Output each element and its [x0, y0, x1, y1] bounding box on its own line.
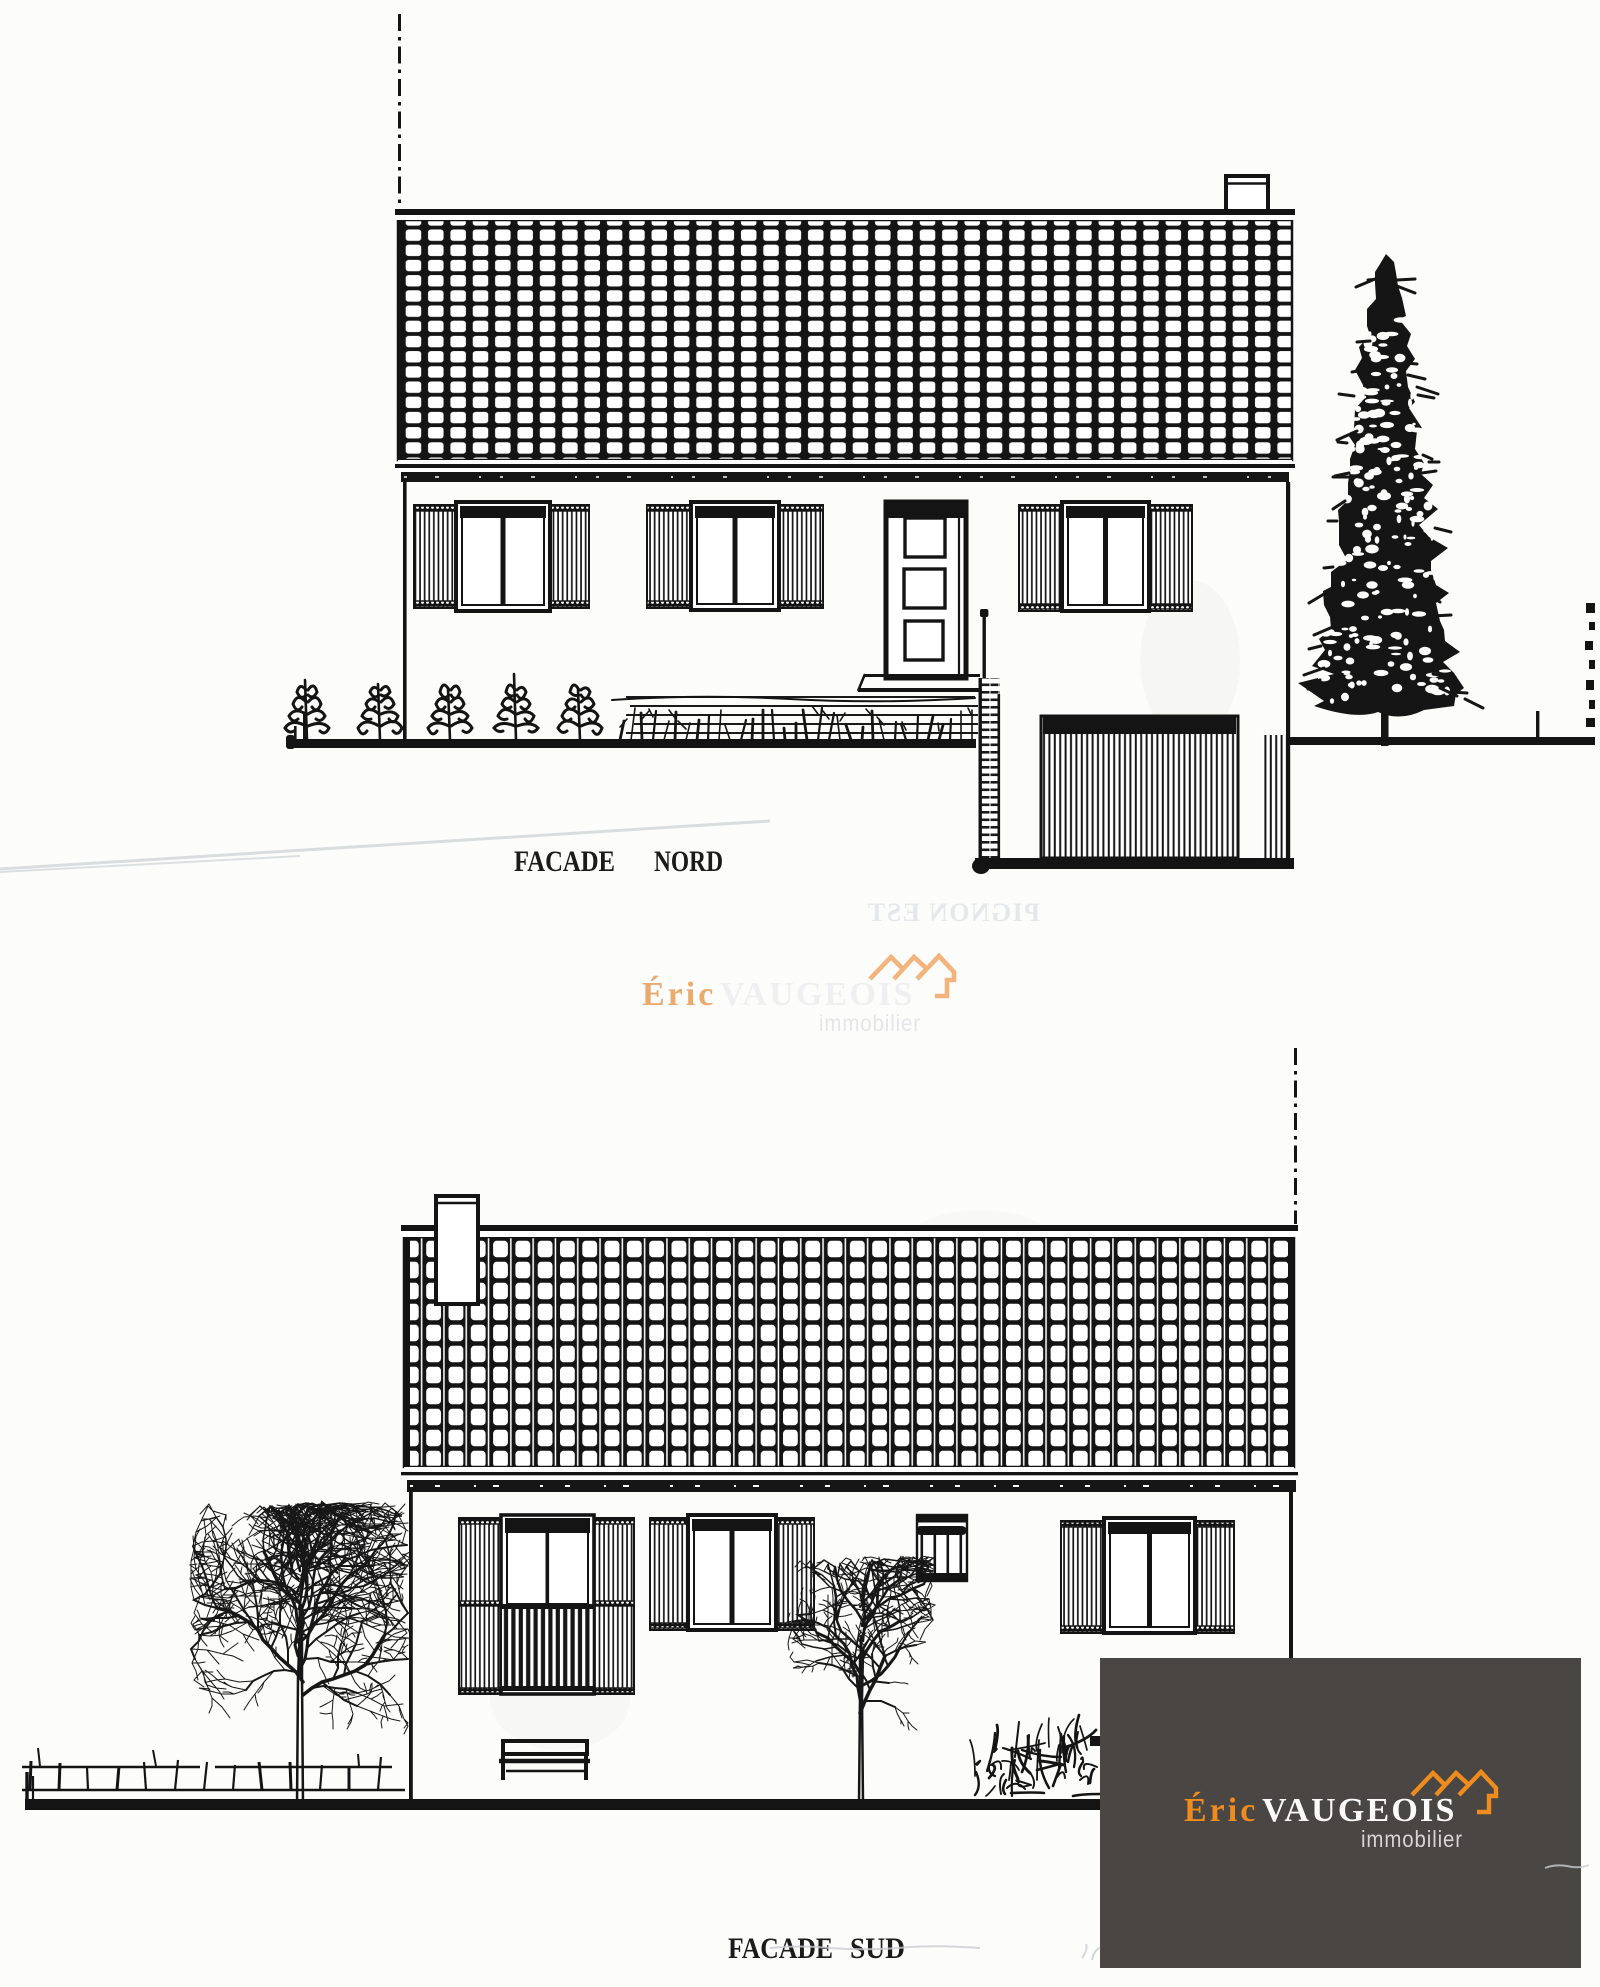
- svg-text:PIGNON EST: PIGNON EST: [868, 898, 1040, 927]
- svg-text:VAUGEOIS: VAUGEOIS: [720, 976, 915, 1013]
- svg-text:FACADE: FACADE: [514, 845, 615, 878]
- svg-text:immobilier: immobilier: [1361, 1826, 1463, 1852]
- svg-text:immobilier: immobilier: [819, 1010, 921, 1036]
- svg-text:Éric: Éric: [642, 976, 716, 1013]
- svg-text:VAUGEOIS: VAUGEOIS: [1262, 1792, 1457, 1829]
- svg-text:Éric: Éric: [1184, 1792, 1258, 1829]
- svg-text:FACADE: FACADE: [728, 1932, 833, 1965]
- svg-text:NORD: NORD: [654, 845, 723, 878]
